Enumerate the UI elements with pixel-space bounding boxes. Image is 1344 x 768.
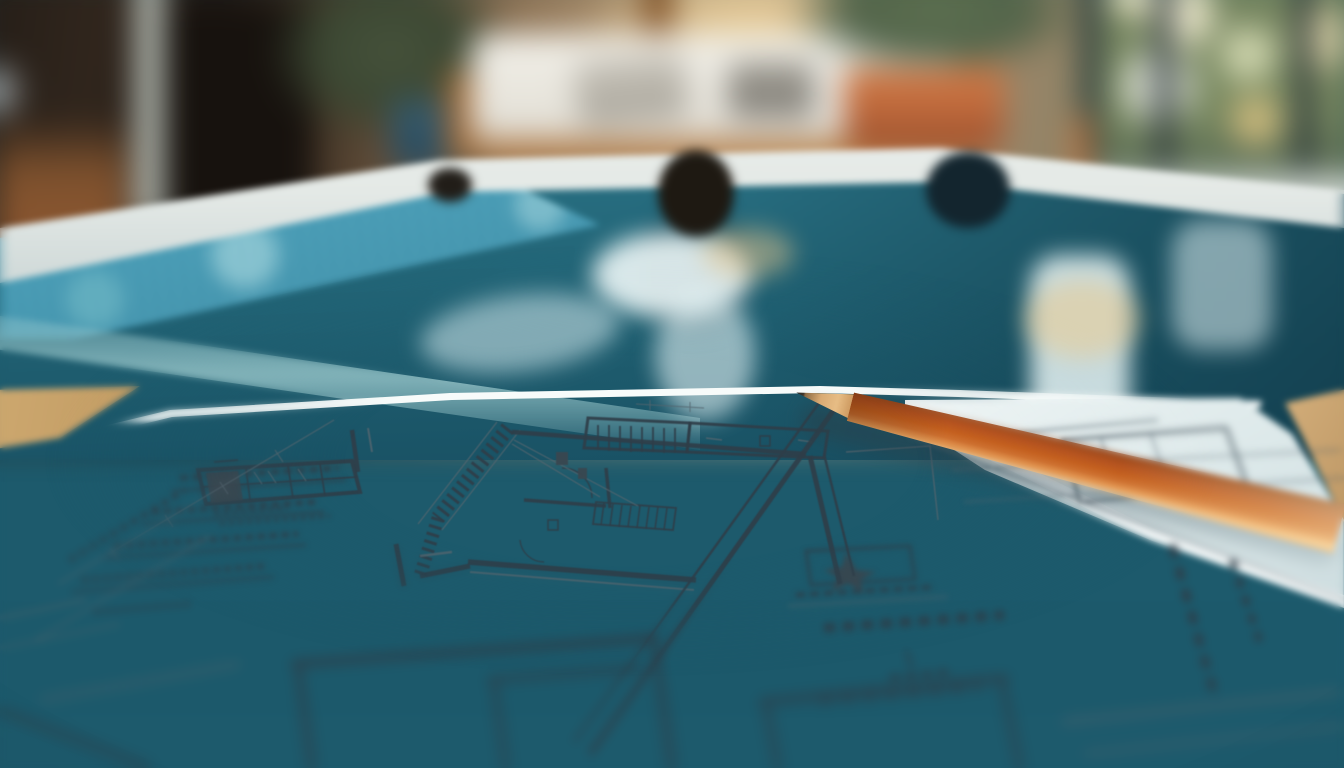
photo-scene — [0, 0, 1344, 768]
blueprint-drawing — [0, 0, 1344, 768]
plan-defocused-far — [0, 638, 1344, 768]
pencil-tip-graphite-icon — [793, 380, 858, 420]
